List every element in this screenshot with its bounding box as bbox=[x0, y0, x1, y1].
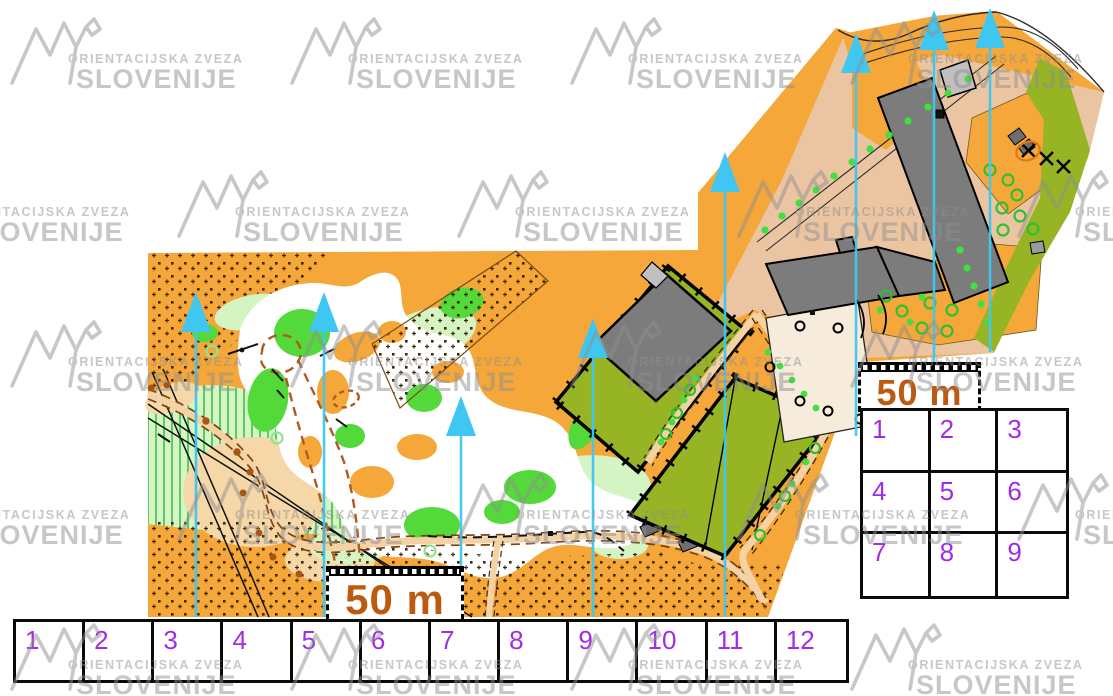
grid-cell: 4 bbox=[863, 473, 931, 535]
grid-cell: 4 bbox=[223, 622, 292, 680]
orienteering-map-page: 50 m 50 m 123456789101112 123456789 ORIE… bbox=[0, 0, 1113, 696]
grid-cell: 5 bbox=[293, 622, 362, 680]
grid-cell: 3 bbox=[154, 622, 223, 680]
bottom-grid: 123456789101112 bbox=[13, 619, 849, 683]
grid-cell-number: 2 bbox=[85, 622, 151, 656]
grid-cell-number: 4 bbox=[863, 473, 928, 507]
grid-cell-number: 9 bbox=[998, 534, 1066, 568]
grid-cell: 2 bbox=[931, 411, 999, 473]
grid-cell-number: 5 bbox=[293, 622, 359, 656]
cliff-dot bbox=[240, 348, 245, 353]
grid-cell: 11 bbox=[708, 622, 777, 680]
right-grid: 123456789 bbox=[860, 408, 1069, 599]
grid-cell: 12 bbox=[777, 622, 846, 680]
black-dot bbox=[810, 310, 815, 315]
grid-cell-number: 3 bbox=[998, 411, 1066, 445]
grid-cell: 7 bbox=[431, 622, 500, 680]
grid-cell-number: 8 bbox=[500, 622, 566, 656]
grid-cell-number: 1 bbox=[16, 622, 82, 656]
grid-cell-number: 7 bbox=[431, 622, 497, 656]
scale-bar: 50 m bbox=[858, 362, 981, 412]
grid-cell: 5 bbox=[931, 473, 999, 535]
grid-cell-number: 9 bbox=[569, 622, 635, 656]
grid-cell: 3 bbox=[998, 411, 1066, 473]
grid-cell: 9 bbox=[569, 622, 638, 680]
grid-cell-number: 12 bbox=[777, 622, 846, 656]
scale-label: 50 m bbox=[329, 576, 461, 624]
scale-bar: 50 m bbox=[326, 566, 464, 620]
grid-cell-number: 1 bbox=[863, 411, 928, 445]
grid-cell: 7 bbox=[863, 534, 931, 596]
grid-cell: 6 bbox=[362, 622, 431, 680]
grid-cell: 8 bbox=[931, 534, 999, 596]
grid-cell-number: 2 bbox=[931, 411, 996, 445]
grid-cell: 10 bbox=[638, 622, 707, 680]
grid-cell-number: 3 bbox=[154, 622, 220, 656]
grid-cell: 1 bbox=[16, 622, 85, 680]
grid-cell-number: 7 bbox=[863, 534, 928, 568]
grid-cell-number: 5 bbox=[931, 473, 996, 507]
grid-cell: 6 bbox=[998, 473, 1066, 535]
grid-cell-number: 11 bbox=[708, 622, 774, 656]
scale-ruler bbox=[861, 362, 978, 372]
grid-cell-number: 4 bbox=[223, 622, 289, 656]
grid-cell-number: 8 bbox=[931, 534, 996, 568]
grid-cell: 2 bbox=[85, 622, 154, 680]
grid-cell-number: 6 bbox=[998, 473, 1066, 507]
grid-cell: 8 bbox=[500, 622, 569, 680]
grid-cell-number: 6 bbox=[362, 622, 428, 656]
grid-cell: 9 bbox=[998, 534, 1066, 596]
grid-cell-number: 10 bbox=[638, 622, 704, 656]
scale-ruler bbox=[329, 566, 461, 576]
grid-cell: 1 bbox=[863, 411, 931, 473]
black-dot bbox=[548, 531, 553, 536]
